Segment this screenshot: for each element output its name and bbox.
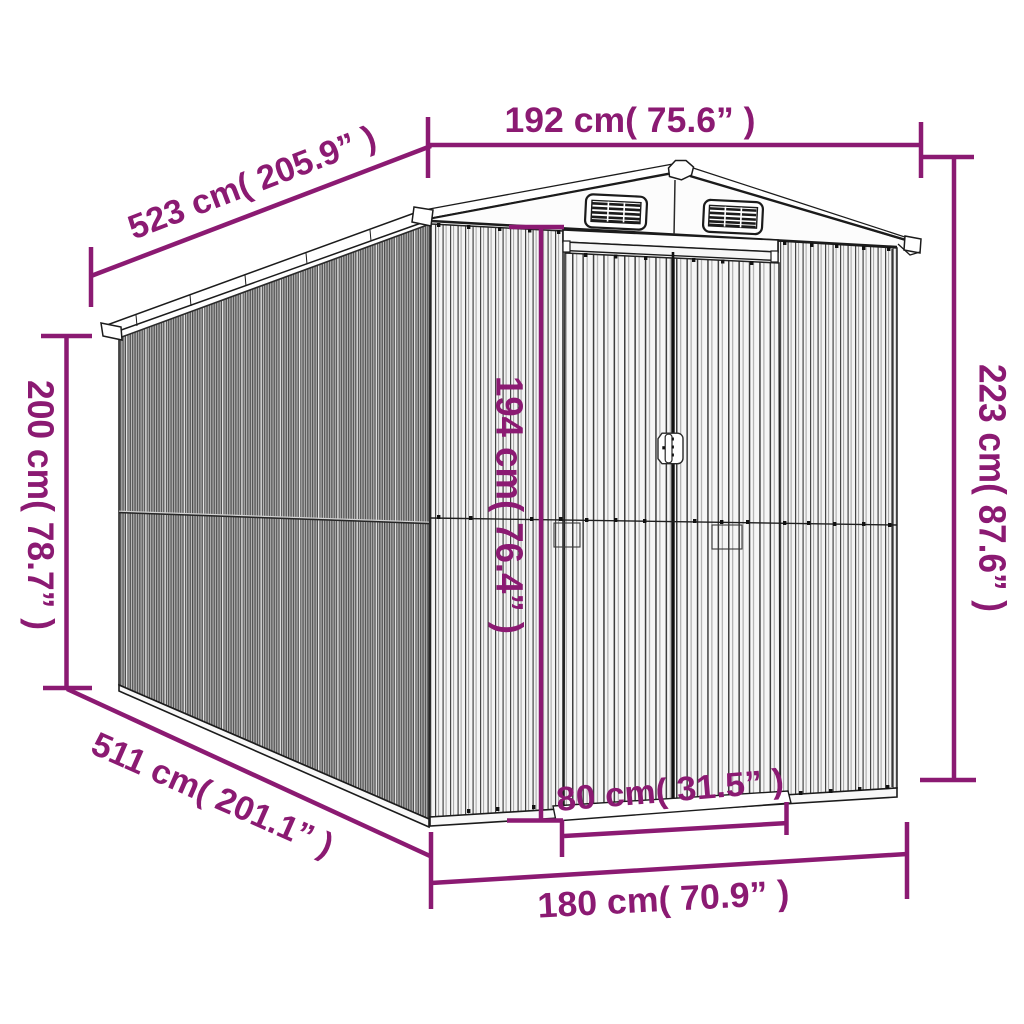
svg-text:223 cm( 87.6” ): 223 cm( 87.6” ) — [971, 364, 1013, 612]
svg-text:192 cm( 75.6” ): 192 cm( 75.6” ) — [505, 101, 756, 140]
svg-text:200 cm( 78.7” ): 200 cm( 78.7” ) — [20, 380, 61, 630]
svg-text:194 cm( 76.4” ): 194 cm( 76.4” ) — [488, 376, 530, 634]
